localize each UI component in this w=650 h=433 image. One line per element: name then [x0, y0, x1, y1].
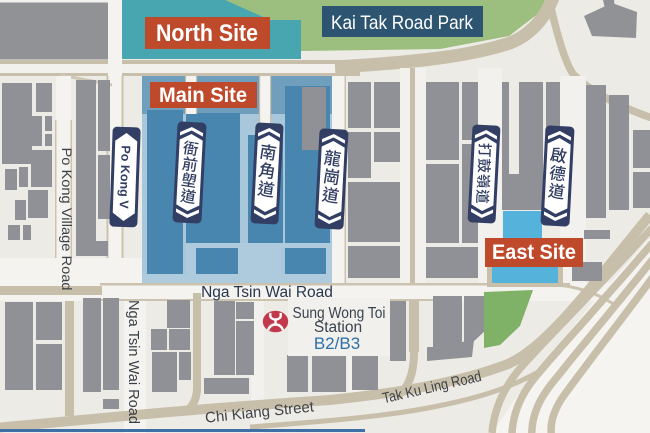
svg-text:Kai Tak Road Park: Kai Tak Road Park	[331, 12, 473, 34]
svg-text:Po Kong Village Road: Po Kong Village Road	[59, 148, 75, 291]
svg-text:Main Site: Main Site	[159, 84, 247, 107]
svg-text:North Site: North Site	[156, 20, 258, 47]
svg-text:Po Kong V: Po Kong V	[117, 145, 133, 209]
svg-text:East Site: East Site	[492, 241, 576, 264]
svg-text:Nga Tsin Wai Road: Nga Tsin Wai Road	[125, 300, 141, 424]
svg-text:B2/B3: B2/B3	[314, 334, 360, 353]
